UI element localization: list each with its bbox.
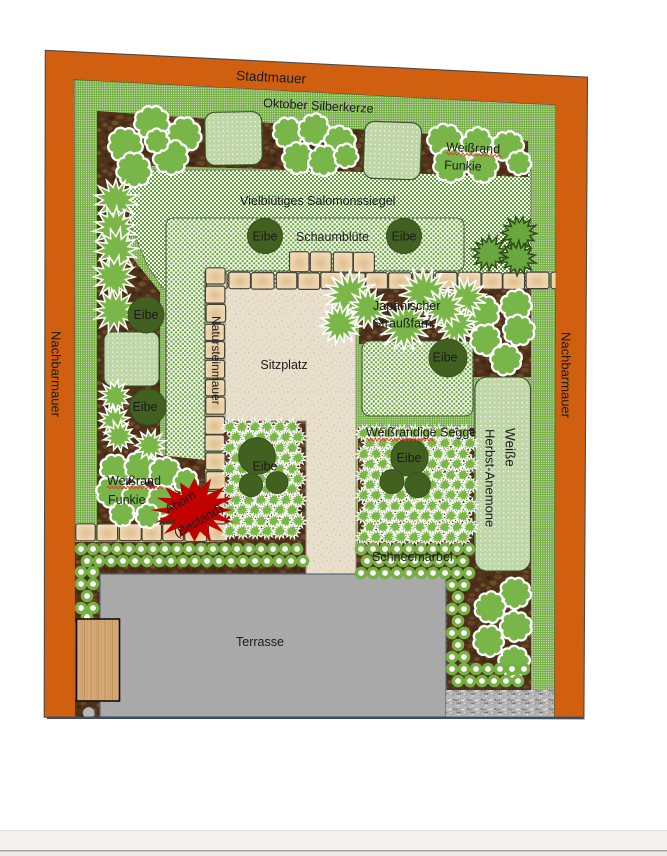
svg-text:Herbst-Anemone: Herbst-Anemone	[483, 429, 498, 527]
svg-text:Terrasse: Terrasse	[236, 635, 284, 649]
svg-text:Funkie: Funkie	[108, 493, 146, 507]
svg-text:Eibe: Eibe	[396, 451, 421, 465]
svg-text:Vielblütiges Salomonssiegel: Vielblütiges Salomonssiegel	[240, 194, 395, 208]
svg-text:Eibe: Eibe	[391, 230, 416, 244]
svg-text:Nachbarmauer: Nachbarmauer	[559, 332, 574, 419]
svg-text:Eibe: Eibe	[252, 230, 277, 244]
svg-text:Schneemarbel: Schneemarbel	[372, 550, 453, 564]
svg-text:Eibe: Eibe	[252, 460, 277, 474]
svg-text:Eibe: Eibe	[432, 351, 457, 365]
svg-text:Natursteinmauer: Natursteinmauer	[209, 316, 223, 405]
svg-text:Weißrandige Segge: Weißrandige Segge	[366, 426, 476, 440]
svg-text:Japanischer: Japanischer	[373, 299, 440, 313]
svg-text:Weiße: Weiße	[503, 428, 518, 467]
svg-text:Eibe: Eibe	[132, 400, 157, 414]
svg-text:Nachbarmauer: Nachbarmauer	[49, 331, 64, 418]
svg-text:Straußfarn: Straußfarn	[373, 317, 432, 331]
svg-text:Funkie: Funkie	[444, 158, 482, 174]
svg-text:Eibe: Eibe	[133, 308, 158, 322]
svg-text:Schaumblüte: Schaumblüte	[296, 230, 369, 244]
svg-text:Sitzplatz: Sitzplatz	[260, 358, 307, 372]
svg-text:Weißrand: Weißrand	[107, 474, 161, 488]
